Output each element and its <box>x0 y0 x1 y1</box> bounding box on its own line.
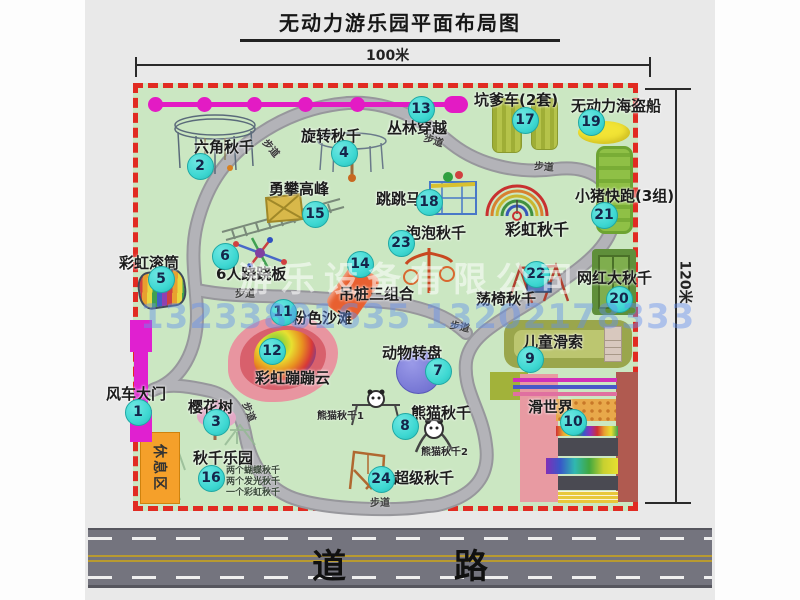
attraction-15-label: 勇攀高峰 <box>269 178 329 199</box>
zipline-node <box>350 97 365 112</box>
attraction-12-marker: 12 <box>259 338 286 365</box>
watermark-company: 游乐设备有限公司 <box>238 252 582 301</box>
attraction-12-label: 彩虹蹦蹦云 <box>255 367 330 388</box>
attraction-13-marker: 13 <box>408 96 435 123</box>
attraction-8-label: 熊猫秋千 <box>411 402 471 423</box>
slide-world-dark-band <box>558 438 618 456</box>
slide-world-dark-band <box>558 476 618 490</box>
attraction-2-marker: 2 <box>187 153 214 180</box>
rest-area: 休息区 <box>140 432 180 504</box>
dim-label-top: 100米 <box>366 45 409 65</box>
attraction-3-marker: 3 <box>203 409 230 436</box>
attraction-1-marker: 1 <box>125 399 152 426</box>
slide-world-lane <box>513 378 617 382</box>
page-title: 无动力游乐园平面布局图 <box>240 7 560 42</box>
attraction-7-marker: 7 <box>425 358 452 385</box>
panda-swing-2-label: 熊猫秋千2 <box>421 443 468 458</box>
attraction-9-marker: 9 <box>517 346 544 373</box>
attraction-17-marker: 17 <box>512 107 539 134</box>
attraction-16-label: 秋千乐园 <box>193 447 253 468</box>
watermark-phone: 13233801635 13202178333 <box>140 297 695 337</box>
attraction-16-marker: 16 <box>198 465 225 492</box>
zipline-node <box>197 97 212 112</box>
attraction-20-label: 网红大秋千 <box>577 267 652 288</box>
slide-world-red-band <box>616 372 638 502</box>
attraction-19-marker: 19 <box>578 109 605 136</box>
attraction-17-label: 坑爹车(2套) <box>474 89 558 110</box>
zipline-node <box>298 97 313 112</box>
dim-tick-top-left <box>135 57 137 77</box>
attraction-6-marker: 6 <box>212 243 239 270</box>
attraction-18-marker: 18 <box>416 189 443 216</box>
attraction-15-marker: 15 <box>302 201 329 228</box>
attraction-8-marker: 8 <box>392 413 419 440</box>
attraction-21-label: 小猪快跑(3组) <box>575 185 674 206</box>
slide-world-yellow-band <box>558 491 618 503</box>
attraction-10-marker: 10 <box>560 409 587 436</box>
rest-area-label: 休息区 <box>150 444 170 492</box>
attraction-23-label: 泡泡秋千 <box>406 222 466 243</box>
zipline-node <box>247 97 262 112</box>
zipline-node <box>148 97 163 112</box>
walkway-label: 步道 <box>534 157 555 173</box>
slide-world-rainbow-band <box>546 458 618 474</box>
attraction-21-marker: 21 <box>591 202 618 229</box>
panda-swing-1-label: 熊猫秋千1 <box>317 407 364 422</box>
attraction-24-label: 超级秋千 <box>394 467 454 488</box>
attraction-4-marker: 4 <box>331 140 358 167</box>
walkway-label: 步道 <box>370 494 390 509</box>
swing-paradise-details: 两个蝴蝶秋千 两个发光秋千 一个彩虹秋千 <box>226 466 280 499</box>
road: 道 路 <box>88 528 712 588</box>
zipline-end <box>444 96 468 113</box>
attraction-24-marker: 24 <box>368 466 395 493</box>
dim-tick-right-bottom <box>645 502 691 504</box>
slide-world-lane <box>513 385 617 389</box>
attraction-18-label: 跳跳马 <box>376 188 421 209</box>
dim-tick-right-top <box>645 88 691 90</box>
screenshot-root: { "title": "无动力游乐园平面布局图", "dimensions": … <box>0 0 800 600</box>
dim-tick-top-right <box>649 57 651 77</box>
attraction-5-marker: 5 <box>148 266 175 293</box>
road-label: 道 路 <box>88 539 712 588</box>
rainbow-swing-label: 彩虹秋千 <box>505 216 569 240</box>
